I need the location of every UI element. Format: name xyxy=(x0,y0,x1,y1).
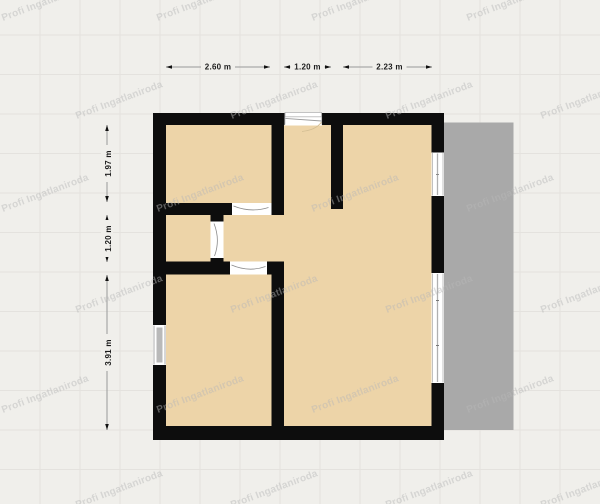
svg-text:1.20 m: 1.20 m xyxy=(294,62,320,71)
svg-text:2.23 m: 2.23 m xyxy=(376,62,402,71)
svg-text:1.20 m: 1.20 m xyxy=(104,225,113,251)
svg-text:1.97 m: 1.97 m xyxy=(104,150,113,176)
svg-text:2.60 m: 2.60 m xyxy=(205,62,231,71)
svg-text:3.91 m: 3.91 m xyxy=(104,339,113,365)
